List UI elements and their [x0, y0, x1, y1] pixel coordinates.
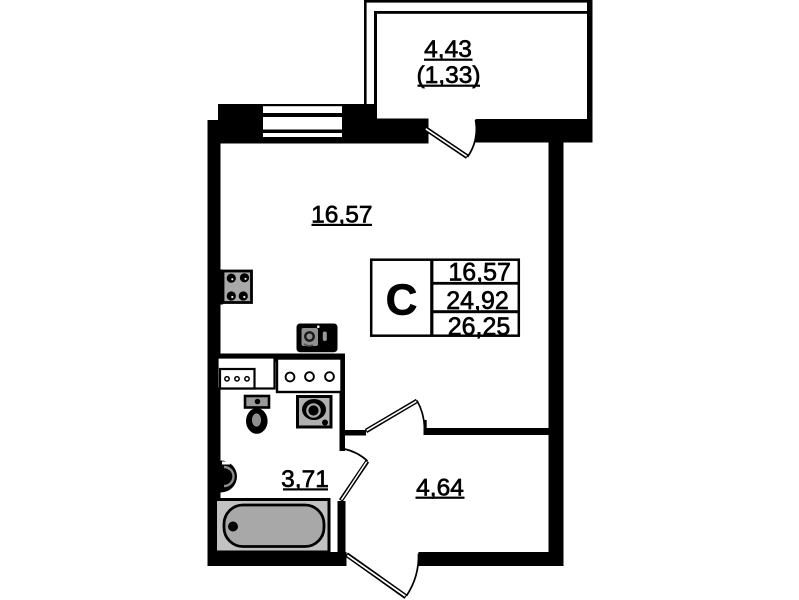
svg-text:26,25: 26,25 [448, 313, 511, 341]
svg-text:16,57: 16,57 [448, 259, 511, 287]
svg-text:C: C [386, 276, 418, 325]
svg-text:24,92: 24,92 [446, 287, 509, 315]
